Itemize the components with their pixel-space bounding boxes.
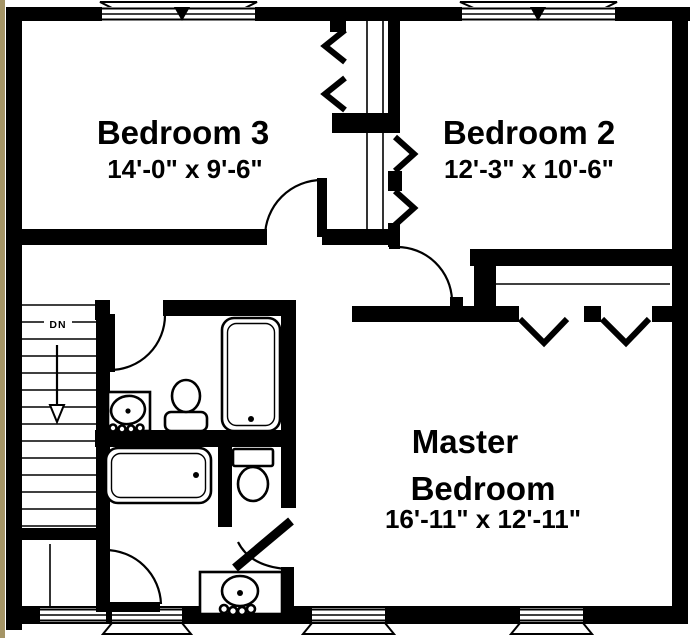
bedroom3-dims: 14'-0" x 9'-6" <box>107 154 263 184</box>
master-dims: 16'-11" x 12'-11" <box>385 504 581 534</box>
toilet-icon <box>165 380 207 431</box>
door-hall-bathroom <box>105 314 165 372</box>
window-bottom-3 <box>511 608 592 634</box>
door-master-bathroom <box>235 521 291 569</box>
window-bottom-2 <box>303 608 394 634</box>
stairs: DN <box>22 305 96 608</box>
window-top-left <box>100 2 257 21</box>
hall-bathroom-fixtures <box>108 318 280 433</box>
stairs-dn-label: DN <box>49 319 66 331</box>
door-bedroom3 <box>265 178 327 237</box>
floor-plan: DN <box>0 0 696 638</box>
scan-edge <box>0 0 5 638</box>
master-bathroom-fixtures <box>106 448 282 615</box>
sink-vanity-icon <box>108 392 150 433</box>
window-top-right <box>460 2 617 21</box>
floor-plan-drawing: DN <box>0 0 696 638</box>
bedroom2-name: Bedroom 2 <box>443 114 615 151</box>
bifold-doors-bedroom3-closet <box>325 30 345 110</box>
master-name-line2: Bedroom <box>411 470 556 507</box>
bathtub-icon <box>222 318 280 431</box>
bedroom3-name: Bedroom 3 <box>97 114 269 151</box>
toilet-icon <box>233 449 273 501</box>
bedroom2-dims: 12'-3" x 10'-6" <box>444 154 614 184</box>
master-name-line1: Master <box>412 423 519 460</box>
door-bedroom2 <box>389 239 452 300</box>
bathtub-icon <box>106 448 211 503</box>
bifold-doors-master-closet <box>520 319 649 343</box>
sink-vanity-icon <box>200 572 282 615</box>
